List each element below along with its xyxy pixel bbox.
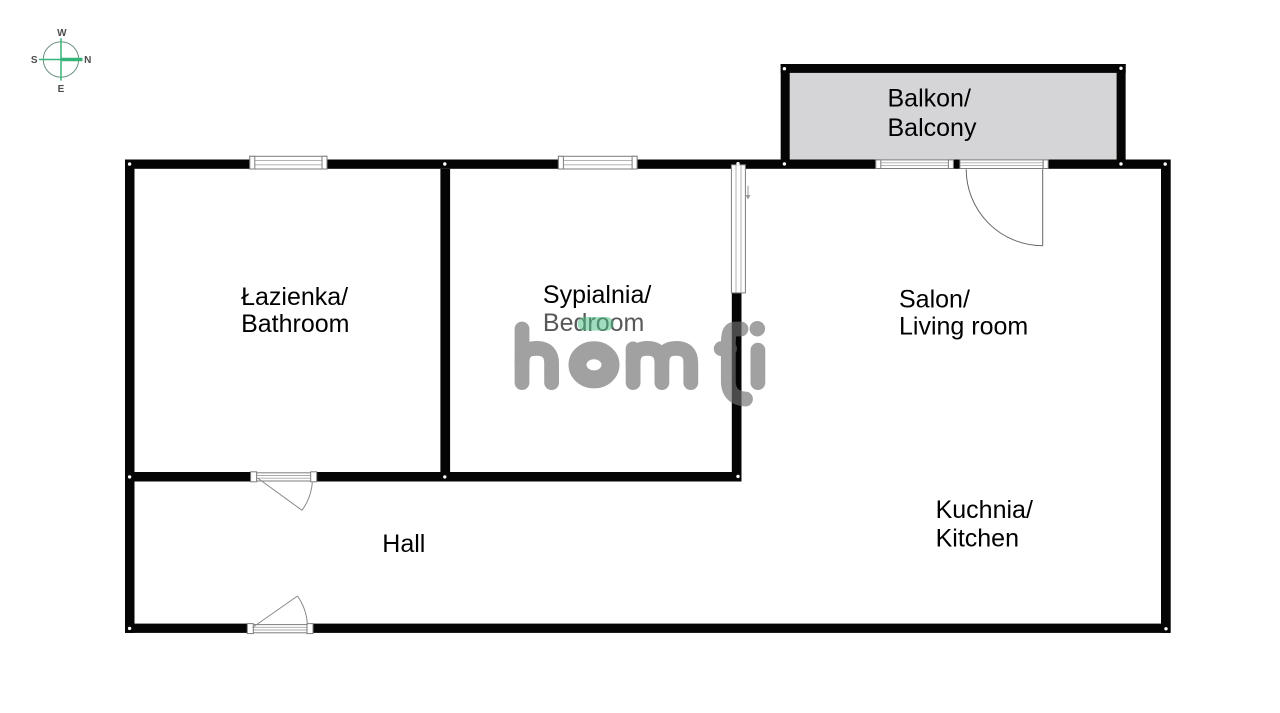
svg-text:Balcony: Balcony xyxy=(888,114,977,142)
svg-text:S: S xyxy=(31,55,38,66)
svg-text:W: W xyxy=(57,28,67,39)
svg-text:Salon/: Salon/ xyxy=(899,285,970,313)
svg-text:N: N xyxy=(84,55,91,66)
svg-text:Bathroom: Bathroom xyxy=(241,310,349,338)
svg-text:Łazienka/: Łazienka/ xyxy=(241,283,348,311)
svg-text:Kuchnia/: Kuchnia/ xyxy=(936,496,1033,524)
svg-text:Balkon/: Balkon/ xyxy=(888,85,971,113)
svg-text:Sypialnia/: Sypialnia/ xyxy=(543,281,651,309)
svg-text:Kitchen: Kitchen xyxy=(936,524,1019,552)
svg-text:Living room: Living room xyxy=(899,313,1028,341)
svg-text:Hall: Hall xyxy=(382,530,425,558)
svg-text:E: E xyxy=(58,84,65,95)
